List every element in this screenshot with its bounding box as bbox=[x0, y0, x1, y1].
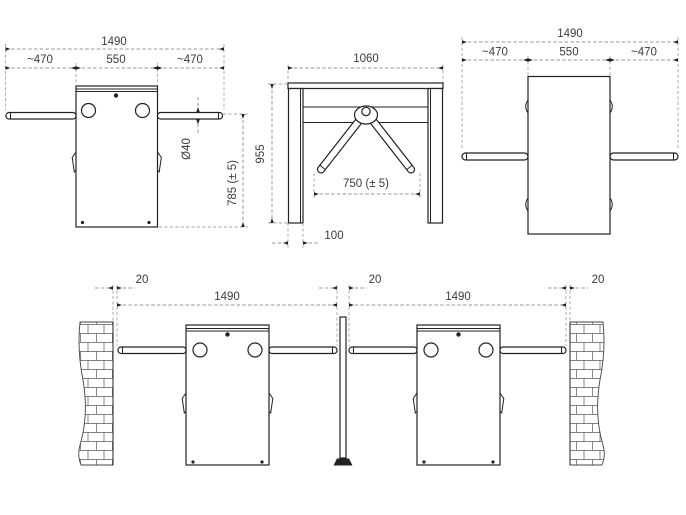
side-dim-arm-span: 750 (± 5) bbox=[314, 173, 420, 199]
side-dim-width-label: 1060 bbox=[353, 53, 379, 65]
front-dim-height: 785 (± 5) bbox=[159, 114, 248, 227]
side-dim-leg-depth: 100 bbox=[272, 223, 344, 248]
front-dim-arm-diameter-label: Ø40 bbox=[181, 138, 193, 160]
front-dim-total-label: 1490 bbox=[101, 36, 127, 48]
install-dim-center-gap-label: 20 bbox=[369, 274, 382, 286]
front-dim-segments: ~470 550 ~470 bbox=[6, 54, 225, 68]
front-dim-total: 1490 bbox=[6, 36, 225, 49]
install-dim-unit1: 1490 bbox=[117, 291, 337, 305]
unit2-right-arm bbox=[500, 347, 566, 354]
side-tripod-arms bbox=[316, 106, 416, 174]
top-view: 1490 ~470 550 ~470 bbox=[462, 28, 678, 234]
unit2-left-arm bbox=[349, 347, 417, 354]
left-wall bbox=[79, 322, 113, 465]
drawing-canvas: 1490 ~470 550 ~470 bbox=[0, 0, 686, 515]
side-dim-width: 1060 bbox=[288, 53, 443, 83]
install-dim-unit1-label: 1490 bbox=[214, 291, 240, 303]
top-dim-segments: ~470 550 ~470 bbox=[462, 47, 678, 61]
side-dim-arm-span-label: 750 (± 5) bbox=[343, 178, 389, 190]
turnstile-technical-drawing: 1490 ~470 550 ~470 bbox=[0, 0, 686, 515]
top-dim-right-arm-label: ~470 bbox=[631, 47, 657, 59]
top-dim-total: 1490 bbox=[462, 28, 678, 42]
front-cabinet bbox=[72, 86, 161, 227]
install-dim-wall-gap-left-label: 20 bbox=[136, 274, 149, 286]
turnstile-unit-2 bbox=[413, 325, 504, 465]
top-left-arm bbox=[462, 153, 528, 160]
install-dim-unit2-label: 1490 bbox=[445, 291, 471, 303]
front-right-pivot-circle bbox=[136, 104, 150, 118]
install-dim-wall-gap-right-label: 20 bbox=[592, 274, 605, 286]
side-dim-height-label: 955 bbox=[255, 144, 267, 163]
front-view: 1490 ~470 550 ~470 bbox=[6, 36, 249, 227]
install-dim-wall-gap-right: 20 bbox=[548, 274, 604, 288]
unit1-left-arm bbox=[118, 347, 186, 354]
front-right-arm bbox=[158, 113, 223, 120]
front-left-arm bbox=[6, 113, 76, 120]
front-dim-left-arm-label: ~470 bbox=[27, 54, 53, 66]
side-dim-leg-depth-label: 100 bbox=[324, 230, 343, 242]
installation-view: 20 1490 20 1490 20 bbox=[79, 274, 605, 466]
front-left-pivot-circle bbox=[82, 104, 96, 118]
front-dim-right-arm-label: ~470 bbox=[177, 54, 203, 66]
front-lock-dot bbox=[114, 93, 118, 97]
front-dim-arm-diameter: Ø40 bbox=[181, 97, 198, 160]
right-wall bbox=[570, 322, 604, 465]
install-dim-center-gap: 20 bbox=[319, 274, 381, 288]
top-body bbox=[526, 77, 613, 235]
side-dim-height: 955 bbox=[255, 84, 289, 223]
unit1-right-arm bbox=[269, 347, 337, 354]
install-dim-unit2: 1490 bbox=[349, 291, 566, 305]
turnstile-unit-1 bbox=[182, 325, 273, 465]
side-frame bbox=[288, 83, 443, 223]
top-right-arm bbox=[610, 153, 678, 160]
front-dim-height-label: 785 (± 5) bbox=[227, 160, 239, 206]
side-view: 1060 955 bbox=[255, 53, 443, 248]
top-dim-body-label: 550 bbox=[559, 47, 578, 59]
top-dim-total-label: 1490 bbox=[557, 28, 583, 40]
front-dim-body-label: 550 bbox=[106, 54, 125, 66]
top-dim-left-arm-label: ~470 bbox=[482, 47, 508, 59]
center-post bbox=[334, 317, 353, 466]
install-dim-wall-gap-left: 20 bbox=[95, 274, 148, 288]
